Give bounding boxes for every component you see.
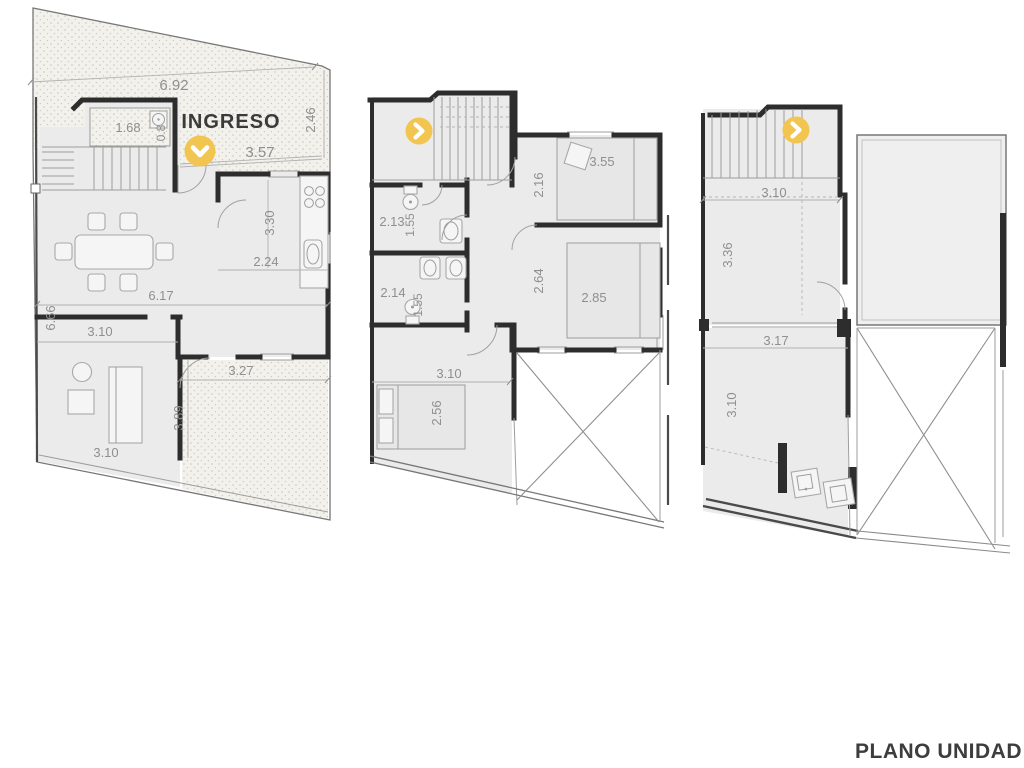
floor-plan-canvas: INGRESO 6.92 3.57 2.46 1.68 0.8 3.30 2.2… — [0, 0, 1024, 768]
void-cross — [517, 350, 660, 522]
dimension-label: 3.10 — [93, 445, 118, 460]
dimension-label: 2.56 — [429, 400, 444, 425]
dimension-label: 2.46 — [303, 107, 318, 132]
dimension-label: 2.24 — [253, 254, 278, 269]
kitchen-fixtures — [300, 176, 328, 288]
dimension-label: 3.36 — [720, 242, 735, 267]
dimension-label: 3.17 — [763, 333, 788, 348]
dimension-label: 1.55 — [411, 293, 425, 317]
dimension-label: 3.27 — [228, 363, 253, 378]
dimension-label: 0.8 — [154, 124, 168, 141]
void-cross — [857, 328, 995, 549]
second-floor-plan: 3.10 3.36 3.17 3.10 — [690, 85, 1024, 550]
dimension-label: 3.10 — [436, 366, 461, 381]
dimension-label: 6.17 — [148, 288, 173, 303]
dimension-label: 3.10 — [87, 324, 112, 339]
dimension-label: 1.68 — [115, 120, 140, 135]
ground-floor-plan: INGRESO 6.92 3.57 2.46 1.68 0.8 3.30 2.2… — [28, 0, 340, 525]
dimension-label: 2.16 — [531, 172, 546, 197]
plan-title: PLANO UNIDAD — [855, 740, 1022, 764]
first-floor-plan: 3.55 2.16 2.13 1.55 2.14 1.55 2.64 2.85 … — [362, 85, 672, 525]
dimension-label: 2.64 — [531, 268, 546, 293]
dimension-label: 3.10 — [724, 392, 739, 417]
dimension-label: 2.13 — [379, 214, 404, 229]
dimension-label: 3.57 — [245, 144, 274, 161]
stair-marker — [406, 118, 433, 145]
entrance-marker — [185, 136, 216, 167]
dimension-label: 3.10 — [761, 185, 786, 200]
dimension-label: 2.85 — [581, 290, 606, 305]
dimension-label: 3.55 — [589, 154, 614, 169]
dimension-label: 6.92 — [159, 77, 188, 94]
dimension-label: 1.55 — [403, 213, 417, 237]
entrance-label: INGRESO — [181, 111, 280, 133]
dimension-label: 2.14 — [380, 285, 405, 300]
stair-marker — [783, 117, 810, 144]
dimension-label: 6.66 — [43, 305, 58, 330]
dimension-label: 3.30 — [262, 210, 277, 235]
dimension-label: 3.89 — [171, 405, 186, 430]
